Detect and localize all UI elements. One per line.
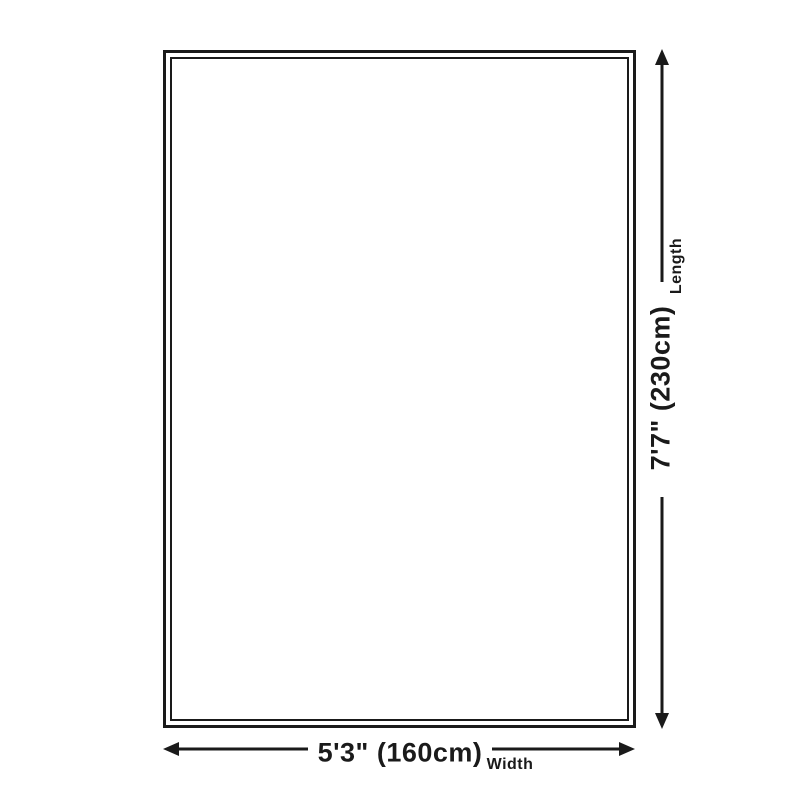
rug-outline [163, 50, 636, 728]
arrow-right-icon [619, 742, 635, 756]
width-value: 5'3" (160cm) [318, 738, 483, 769]
length-value: 7'7" (230cm) [646, 306, 677, 471]
width-label: Width [487, 756, 534, 774]
arrow-up-icon [655, 49, 669, 65]
arrow-down-icon [655, 713, 669, 729]
rug-inner-border [170, 57, 629, 721]
length-label: Length [668, 238, 686, 294]
arrow-left-icon [163, 742, 179, 756]
rug-size-diagram: 7'7" (230cm) Length 5'3" (160cm) Width [0, 0, 800, 800]
